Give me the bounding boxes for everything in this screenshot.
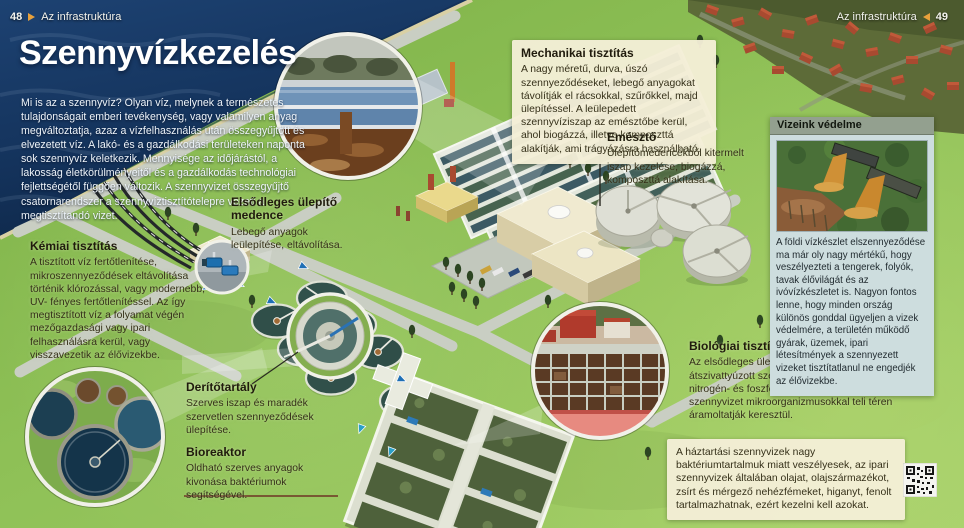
textbook-spread: 48 Az infrastruktúra Az infrastruktúra 4…: [0, 0, 964, 528]
page-number-right: 49: [936, 11, 948, 23]
page-header-left: 48 Az infrastruktúra: [10, 11, 121, 23]
section-title-right: Az infrastruktúra: [837, 11, 917, 23]
arrow-left-icon: [923, 13, 930, 21]
callout-body: Oldható szerves anyagok kivonása baktéri…: [186, 462, 338, 502]
callout-title: Kémiai tisztítás: [30, 240, 210, 253]
callout-title: Derítőtartály: [186, 381, 314, 394]
sidebar-title: Vizeink védelme: [770, 117, 934, 135]
callout-title: Mechanikai tisztítás: [521, 47, 707, 60]
callout-household-wastewater: A háztartási szennyvizek nagy baktériumt…: [667, 439, 905, 520]
qr-code: [903, 463, 937, 497]
callout-title: Elsődleges ülepítő medence: [231, 196, 343, 223]
page-title: Szennyvízkezelés: [19, 36, 296, 70]
page-number-left: 48: [10, 11, 22, 23]
sidebar-water-protection: Vizeink védelme A földi vízkészlet elsze…: [770, 117, 934, 396]
callout-body: A tisztított víz fertőtlenítése, mikrosz…: [30, 256, 210, 362]
callout-digester: Emésztő Ülepítőmedencékből kitermelt isz…: [607, 131, 745, 187]
inset-clarifier-photo: [288, 294, 372, 378]
callout-clarifier-tank: Derítőtartály Szerves iszap és maradék s…: [186, 381, 314, 437]
callout-title: Bioreaktor: [186, 446, 338, 459]
section-title-left: Az infrastruktúra: [41, 11, 121, 23]
polluted-outfall-photo: [776, 140, 928, 232]
inset-clarifiers-aerial-photo: [25, 367, 168, 507]
callout-primary-settling: Elsődleges ülepítő medence Lebegő anyago…: [231, 196, 343, 252]
callout-bioreactor: Bioreaktor Oldható szerves anyagok kivon…: [186, 446, 338, 502]
sidebar-body: A földi vízkészlet elszennyeződése ma má…: [770, 135, 934, 396]
callout-chemical-treatment: Kémiai tisztítás A tisztított víz fertőt…: [30, 240, 210, 362]
callout-title: Emésztő: [607, 131, 745, 144]
callout-body: A háztartási szennyvizek nagy baktériumt…: [676, 446, 896, 512]
callout-body: Ülepítőmedencékből kitermelt iszap kezel…: [607, 147, 745, 187]
page-header-right: Az infrastruktúra 49: [837, 11, 948, 23]
inset-sludge-beds-photo: [531, 302, 669, 440]
sidebar-paragraph: A földi vízkészlet elszennyeződése ma má…: [776, 237, 928, 388]
callout-body: Szerves iszap és maradék szervetlen szen…: [186, 397, 314, 437]
arrow-right-icon: [28, 13, 35, 21]
callout-body: Lebegő anyagok leülepítése, eltávolítása…: [231, 226, 343, 252]
qr-code-graphic: [903, 463, 937, 497]
